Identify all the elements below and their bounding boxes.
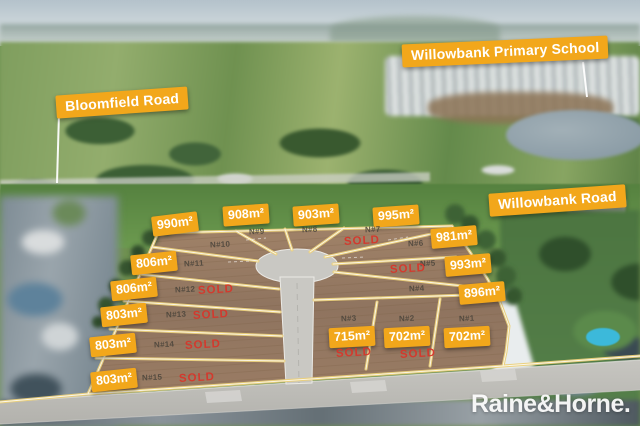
lot-number-10: N#10 [210, 240, 231, 249]
lot-number-4: N#4 [409, 285, 425, 294]
lot-number-14: N#14 [154, 340, 175, 349]
sold-badge-13: SOLD [193, 309, 230, 322]
lot-size-label-1: 702m² [444, 326, 491, 348]
aerial-photo: Willowbank Primary School Bloomfield Roa… [0, 0, 640, 426]
lot-number-9: N#9 [249, 228, 265, 237]
sold-badge-5: SOLD [390, 263, 427, 276]
lot-number-15: N#15 [142, 373, 163, 382]
sold-badge-14: SOLD [185, 339, 222, 352]
lot-size-label-6: 981m² [430, 225, 478, 248]
lot-size-label-9: 908m² [222, 203, 269, 226]
lot-number-13: N#13 [166, 310, 187, 319]
sold-badge-15: SOLD [179, 372, 216, 385]
lot-number-11: N#11 [184, 259, 204, 268]
sold-badge-3: SOLD [336, 347, 373, 360]
lot-number-12: N#12 [175, 285, 196, 294]
lot-number-6: N#6 [408, 240, 424, 249]
lot-number-2: N#2 [399, 315, 415, 324]
lot-number-3: N#3 [341, 315, 357, 324]
lot-size-label-8: 903m² [292, 203, 339, 226]
lot-size-label-3: 715m² [329, 326, 376, 348]
lot-number-7: N#7 [365, 226, 381, 235]
lot-size-label-4: 896m² [458, 281, 506, 304]
sold-badge-12: SOLD [198, 284, 235, 297]
lot-size-label-2: 702m² [384, 326, 431, 348]
lot-number-8: N#8 [302, 226, 318, 235]
sold-badge-2: SOLD [400, 348, 437, 361]
brand-logo: Raine&Horne. [471, 392, 630, 417]
lot-size-label-5: 993m² [444, 253, 492, 276]
label-leader-lines [57, 62, 587, 183]
lot-number-1: N#1 [459, 315, 475, 324]
sold-badge-7: SOLD [344, 235, 381, 248]
